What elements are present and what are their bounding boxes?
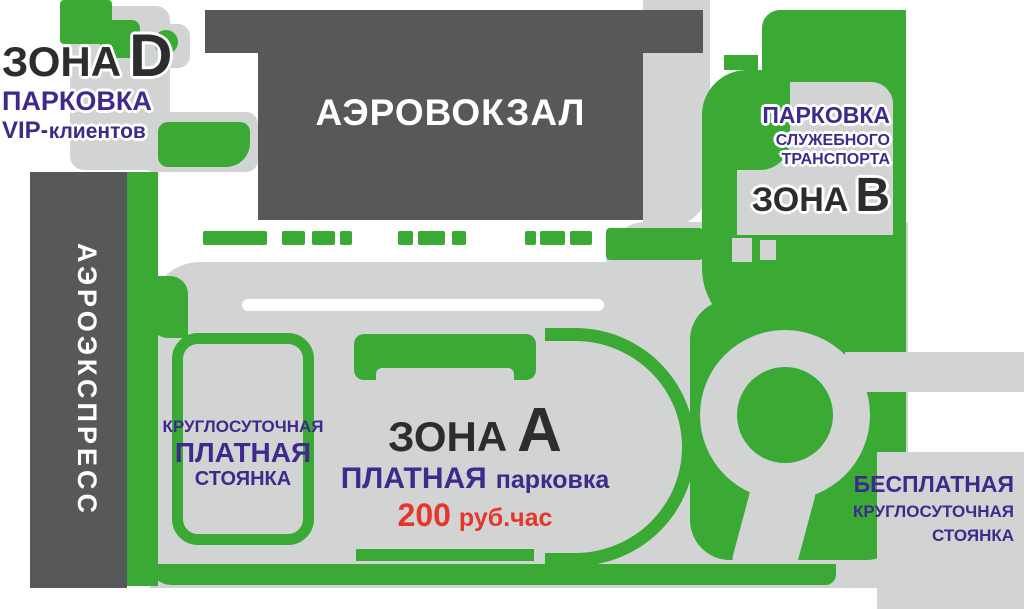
zone-a-price-value: 200	[398, 499, 451, 533]
curbside-dash	[312, 231, 335, 245]
free-lot-line1: БЕСПЛАТНАЯ	[824, 472, 1014, 496]
zone-a-label-group: ЗОНА А ПЛАТНАЯ парковка 200 руб.час	[320, 398, 630, 532]
paid-daily-line1: КРУГЛОСУТОЧНАЯ	[158, 418, 328, 436]
terminal-label: АЭРОВОКЗАЛ	[258, 94, 643, 133]
road-centerline	[242, 299, 604, 311]
zone-d-vip-bold: VIP-	[2, 118, 49, 143]
curbside-dash	[282, 231, 305, 245]
zone-d-title-letter: D	[129, 24, 172, 87]
terminal-west-wing	[205, 10, 258, 53]
terminal-east-wing	[643, 10, 703, 53]
curbside-dash	[570, 231, 592, 245]
zone-d-parking-label: ПАРКОВКА	[2, 87, 172, 115]
zone-b-title: ЗОНА В	[700, 171, 890, 221]
zone-a-paid-rest: парковка	[496, 467, 610, 493]
roundabout-island	[737, 367, 833, 463]
curbside-dash	[452, 231, 466, 245]
zone-b-line2: СЛУЖЕБНОГО	[700, 133, 890, 150]
zone-d-title-zone: ЗОНА	[2, 40, 121, 84]
free-lot-line2: КРУГЛОСУТОЧНАЯ	[824, 503, 1014, 521]
zone-b-title-zone: ЗОНА	[752, 183, 848, 219]
curbside-dash	[398, 231, 413, 245]
zone-a-title-zone: ЗОНА	[388, 415, 507, 459]
zone-a-price: 200 руб.час	[320, 499, 630, 533]
zone-b-label-group: ПАРКОВКА СЛУЖЕБНОГО ТРАНСПОРТА ЗОНА В	[700, 103, 890, 221]
zone-b-slot	[760, 240, 776, 260]
aeroexpress-label: АЭРОЭКСПРЕСС	[57, 180, 101, 580]
zone-a-south-divider	[356, 549, 534, 561]
zone-b-slot	[732, 238, 752, 262]
curbside-dash	[340, 231, 352, 245]
paid-daily-line2: ПЛАТНАЯ	[158, 438, 328, 467]
paid-daily-line3: СТОЯНКА	[158, 469, 328, 490]
airport-parking-map: АЭРОЭКСПРЕСС АЭРОВОКЗАЛ ЗОНА D ПАРКОВКА	[0, 0, 1024, 609]
zone-d-title: ЗОНА D	[2, 24, 172, 87]
zone-b-green-dash	[724, 55, 758, 70]
curbside-dash	[525, 231, 536, 245]
zone-a-title: ЗОНА А	[320, 398, 630, 463]
free-lot-line3: СТОЯНКА	[824, 527, 1014, 545]
zone-a-paid-bold: ПЛАТНАЯ	[341, 463, 487, 495]
zone-a-title-letter: А	[517, 398, 562, 463]
zone-b-green-upper	[762, 10, 906, 72]
zone-a-north-row-notch	[376, 368, 514, 382]
curbside-dash	[540, 231, 565, 245]
curbside-dash	[203, 231, 267, 245]
zone-d-label-group: ЗОНА D ПАРКОВКА VIP- клиентов	[2, 24, 172, 144]
free-lot-label-group: БЕСПЛАТНАЯ КРУГЛОСУТОЧНАЯ СТОЯНКА	[824, 472, 1014, 545]
paid-daily-lot-label-group: КРУГЛОСУТОЧНАЯ ПЛАТНАЯ СТОЯНКА	[158, 418, 328, 490]
zone-d-vip-label: VIP- клиентов	[2, 118, 172, 143]
zone-d-vip-rest: клиентов	[49, 121, 146, 143]
greenbelt-south	[150, 564, 836, 585]
curbside-dash	[418, 231, 445, 245]
greenbelt-aeroexpress	[127, 172, 158, 586]
zone-b-title-letter: В	[855, 171, 890, 221]
greenbelt-elbow	[150, 276, 188, 338]
road-to-free-lot	[845, 352, 1024, 392]
zone-b-parking-label: ПАРКОВКА	[700, 103, 890, 127]
curbside-parking-block	[606, 228, 703, 260]
zone-a-paid-label: ПЛАТНАЯ парковка	[320, 463, 630, 495]
zone-a-price-unit: руб.час	[459, 505, 553, 531]
zone-b-line3: ТРАНСПОРТА	[700, 152, 890, 169]
